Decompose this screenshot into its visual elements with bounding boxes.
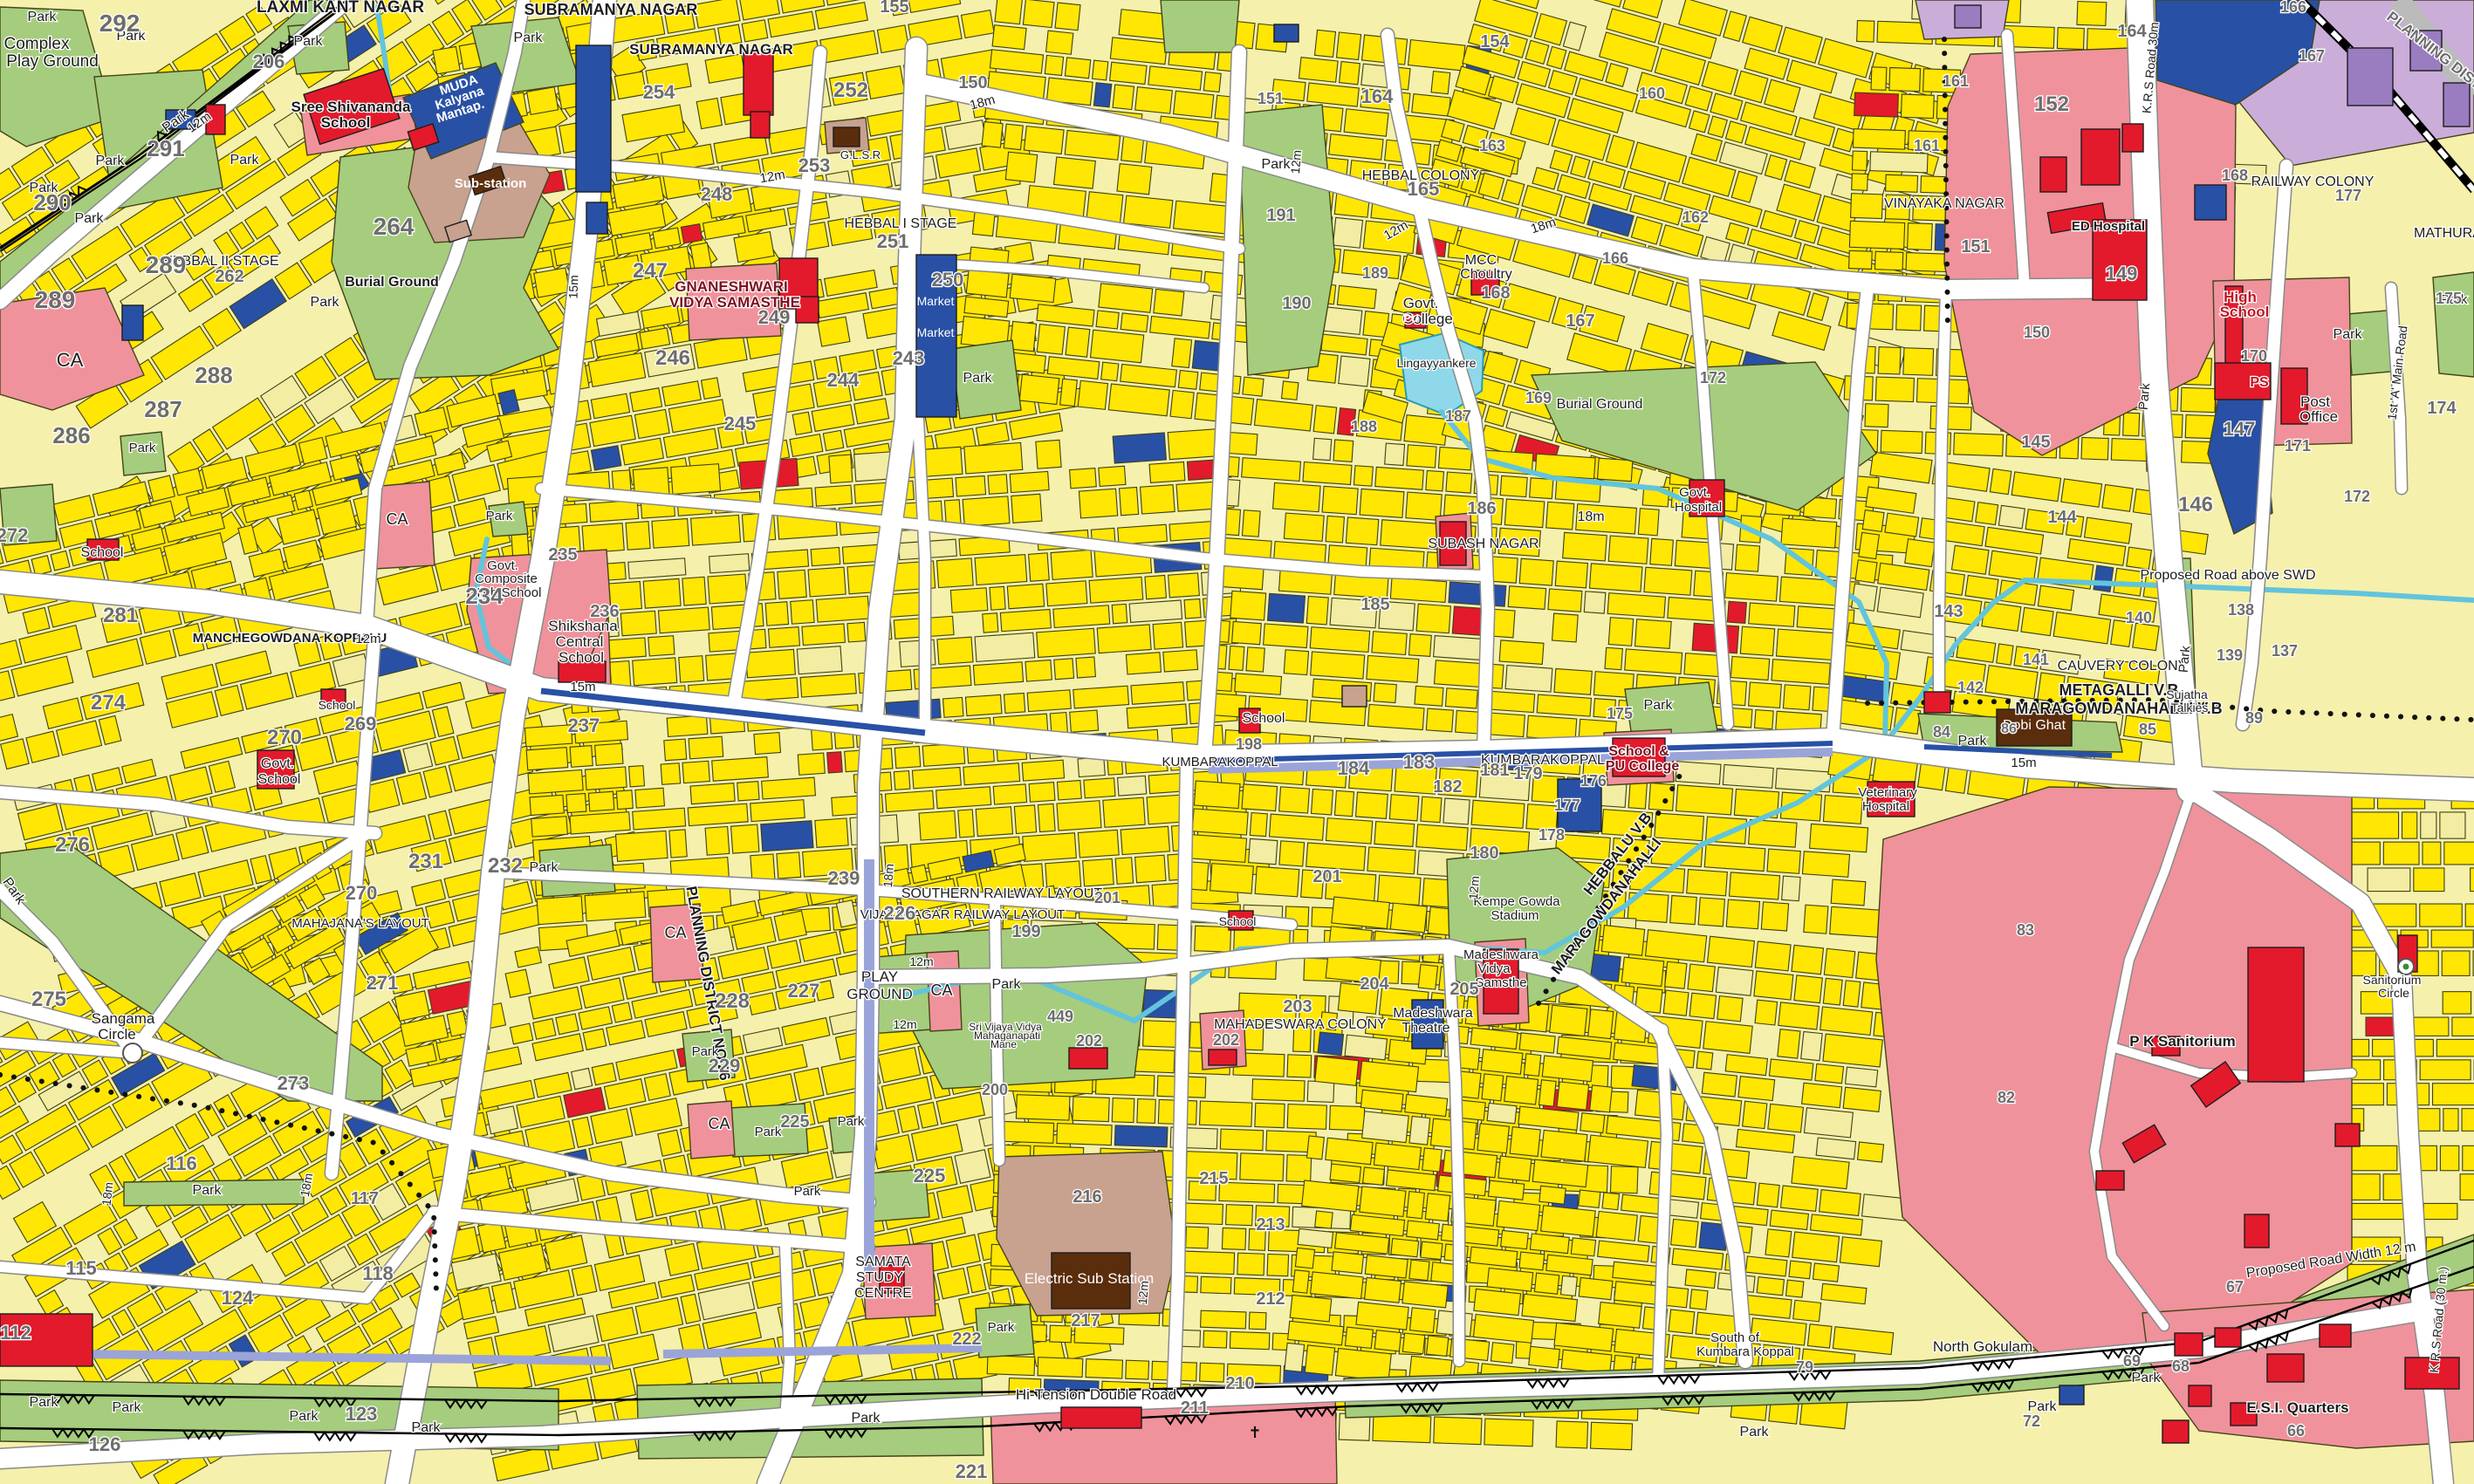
parcel <box>635 788 665 808</box>
parcel <box>433 46 460 73</box>
parcel <box>1896 304 1922 331</box>
parcel <box>1425 1193 1450 1221</box>
parcel <box>1831 879 1866 906</box>
parcel <box>1530 478 1553 499</box>
parcel <box>1046 31 1073 54</box>
parcel <box>531 817 568 837</box>
plot-number-label: 235 <box>548 545 577 564</box>
parcel <box>1776 629 1833 660</box>
parcel <box>1029 553 1050 581</box>
parcel <box>1501 1230 1529 1248</box>
parcel <box>1113 85 1134 110</box>
parcel <box>629 766 645 787</box>
parcel <box>537 896 583 925</box>
map-label: 18m <box>881 863 896 888</box>
parcel <box>1315 1211 1333 1228</box>
civic-building <box>750 112 770 138</box>
parcel <box>885 790 934 811</box>
map-label: P K Sanitorium <box>2129 1033 2236 1050</box>
plot-number-label: 139 <box>2217 646 2243 664</box>
parcel <box>982 121 1003 147</box>
parcel <box>1365 1277 1401 1303</box>
parcel <box>1090 330 1143 363</box>
parcel <box>1491 1343 1513 1364</box>
parcel <box>802 624 845 646</box>
parcel <box>616 790 633 810</box>
parcel <box>1310 627 1369 653</box>
park-zone <box>1161 0 1239 52</box>
parcel <box>626 522 650 551</box>
map-label: CA <box>708 1115 730 1132</box>
plot-number-label: 225 <box>780 1112 809 1132</box>
parcel <box>1333 440 1354 462</box>
parcel <box>1761 902 1788 931</box>
parcel <box>1190 835 1246 863</box>
parcel <box>1192 809 1248 835</box>
plot-number-label: 187 <box>1445 407 1471 425</box>
parcel <box>1607 593 1665 618</box>
parcel <box>1405 1095 1448 1117</box>
parcel <box>937 637 973 664</box>
map-label: Park <box>2334 327 2363 342</box>
plot-number-label: 164 <box>2117 22 2147 41</box>
parcel <box>808 567 846 597</box>
parcel <box>1628 782 1647 809</box>
parcel <box>586 767 627 790</box>
map-label: Hi-Tension Double Road <box>1016 1386 1176 1403</box>
parcel <box>2465 904 2474 927</box>
parcel <box>1871 67 1887 91</box>
parcel <box>1778 1029 1800 1058</box>
parcel <box>2440 812 2465 838</box>
parcel <box>1486 713 1525 737</box>
parcel <box>1404 415 1448 446</box>
parcel <box>2347 1145 2397 1170</box>
plot-number-label: 191 <box>1266 206 1295 225</box>
parcel <box>1865 404 1888 427</box>
plot-number-label: 154 <box>1480 32 1510 51</box>
parcel <box>1426 708 1453 732</box>
parcel <box>1749 603 1795 626</box>
parcel <box>1851 194 1883 219</box>
parcel <box>1066 327 1090 357</box>
parcel <box>430 736 459 765</box>
parcel <box>1023 833 1077 862</box>
parcel <box>1011 494 1042 523</box>
map-label: G.L.S.R <box>840 148 881 161</box>
parcel <box>2057 28 2084 50</box>
parcel <box>1286 1155 1312 1182</box>
parcel <box>1823 1034 1882 1067</box>
parcel <box>1816 1138 1855 1159</box>
parcel <box>2077 2 2107 26</box>
parcel <box>1078 380 1107 409</box>
parcel <box>988 475 1008 495</box>
parcel <box>1689 993 1716 1018</box>
parcel <box>1596 1211 1637 1241</box>
parcel <box>1306 1136 1324 1159</box>
parcel <box>1354 466 1373 487</box>
parcel <box>1434 1417 1482 1445</box>
map-label: Market <box>917 325 955 339</box>
parcel <box>1290 1295 1332 1321</box>
parcel <box>2420 1060 2471 1080</box>
civic-building <box>2081 129 2120 185</box>
map-label: School <box>81 545 124 560</box>
parcel <box>1120 313 1148 332</box>
map-label: Park <box>530 860 559 875</box>
road <box>785 1248 790 1418</box>
parcel <box>1716 967 1753 995</box>
parcel <box>1313 438 1332 460</box>
parcel <box>1421 797 1442 822</box>
parcel <box>1608 618 1633 646</box>
plot-number-label: 167 <box>2299 47 2325 65</box>
map-label: CAUVERY COLONY <box>2058 659 2188 674</box>
parcel <box>1093 83 1111 107</box>
commercial-building <box>576 45 611 192</box>
parcel <box>2433 1084 2474 1105</box>
parcel <box>534 268 570 297</box>
parcel <box>1004 693 1025 713</box>
parcel <box>1875 251 1903 270</box>
parcel <box>665 1243 699 1275</box>
map-label: Park <box>193 1183 223 1198</box>
parcel <box>1407 1192 1425 1219</box>
parcel <box>2443 992 2471 1014</box>
parcel <box>1778 1002 1820 1029</box>
parcel <box>1372 632 1407 655</box>
map-label: Park <box>30 1395 59 1410</box>
parcel <box>823 430 844 450</box>
parcel <box>1792 1232 1840 1262</box>
parcel <box>1889 68 1921 92</box>
parcel <box>1273 482 1321 511</box>
parcel <box>1278 1184 1305 1203</box>
civic-building <box>2189 1385 2211 1406</box>
parcel <box>612 1002 632 1022</box>
parcel <box>1529 1346 1560 1368</box>
city-map: LAXMI KANT NAGARSUBRAMANYA NAGARSUBRAMAN… <box>0 0 2474 1484</box>
parcel <box>526 748 568 770</box>
parcel <box>1852 174 1868 190</box>
parcel <box>2181 387 2216 412</box>
parcel <box>1990 468 2011 494</box>
civic-building <box>744 51 773 115</box>
parcel <box>1854 92 1899 117</box>
parcel <box>990 586 1005 610</box>
parcel <box>1249 1312 1266 1330</box>
parcel <box>1054 659 1074 680</box>
plot-number-label: 222 <box>952 1330 981 1349</box>
parcel <box>1755 1000 1778 1025</box>
parcel <box>644 1074 670 1101</box>
plot-number-label: 229 <box>709 1055 741 1077</box>
parcel <box>1471 800 1525 828</box>
parcel <box>1754 710 1773 729</box>
map-label: Park <box>1958 734 1988 749</box>
parcel <box>1830 906 1884 937</box>
parcel <box>633 658 677 686</box>
parcel <box>1385 443 1405 465</box>
parcel <box>1598 458 1633 482</box>
plot-number-label: 138 <box>2228 601 2254 619</box>
parcel <box>1168 573 1200 598</box>
parcel <box>1378 875 1421 905</box>
parcel <box>1725 573 1778 601</box>
parcel <box>1374 1143 1421 1170</box>
parcel <box>2038 585 2073 611</box>
parcel <box>1240 1153 1284 1181</box>
parcel <box>583 1029 607 1050</box>
parcel <box>1730 656 1769 680</box>
parcel <box>530 795 564 815</box>
plot-number-label: 269 <box>345 713 377 735</box>
map-label: Office <box>2299 408 2338 425</box>
parcel <box>1264 624 1308 648</box>
parcel <box>1270 814 1325 840</box>
parcel <box>1614 1282 1660 1305</box>
map-label: Burial Ground <box>1557 397 1643 412</box>
parcel <box>1504 1077 1539 1104</box>
parcel <box>2423 842 2441 865</box>
parcel <box>1093 60 1108 80</box>
parcel <box>1340 61 1360 84</box>
map-label: PLAY <box>861 968 898 985</box>
plot-number-label: 276 <box>55 833 90 857</box>
parcel <box>1229 646 1244 670</box>
parcel <box>1373 1415 1431 1443</box>
map-label: HEBBAL I STAGE <box>845 216 957 231</box>
parcel <box>1055 3 1080 31</box>
parcel <box>1298 1228 1333 1248</box>
map-label: Park <box>129 441 156 455</box>
map-label: Park <box>2176 645 2194 674</box>
parcel <box>1951 545 1989 574</box>
plot-number-label: 151 <box>1961 237 1990 256</box>
parcel <box>1497 1200 1540 1230</box>
parcel <box>963 763 1020 785</box>
parcel <box>1723 765 1773 789</box>
parcel <box>1591 1422 1633 1449</box>
parcel <box>1852 151 1867 170</box>
parcel <box>1445 688 1477 708</box>
parcel <box>1556 1421 1588 1448</box>
parcel <box>1875 377 1914 402</box>
parcel <box>1065 58 1090 79</box>
parcel <box>1541 1130 1587 1161</box>
parcel <box>1768 1104 1804 1132</box>
parcel <box>737 782 759 801</box>
plot-number-label: 117 <box>351 1189 379 1208</box>
plot-number-label: 211 <box>1181 1399 1209 1418</box>
map-label: Stadium <box>1491 908 1539 923</box>
parcel <box>1550 1005 1587 1036</box>
parcel <box>1243 377 1264 396</box>
parcel <box>1687 869 1728 895</box>
parcel <box>1443 798 1470 824</box>
parcel <box>1702 1072 1737 1097</box>
parcel <box>1000 610 1051 632</box>
parcel <box>993 784 1026 804</box>
plot-number-label: 84 <box>1933 723 1950 741</box>
plot-number-label: 145 <box>2021 433 2050 452</box>
parcel <box>1804 1108 1853 1138</box>
parcel <box>1118 524 1168 544</box>
parcel <box>658 607 709 633</box>
civic-building <box>2040 157 2066 192</box>
parcel <box>1230 1331 1269 1349</box>
parcel <box>1407 1221 1440 1240</box>
plot-number-label: 281 <box>103 604 138 627</box>
parcel <box>1084 778 1115 798</box>
map-label: GNANESHWARI <box>675 278 787 295</box>
parcel <box>585 892 646 921</box>
map-label: Park <box>992 977 1022 992</box>
map-label: 18m <box>1577 509 1604 524</box>
parcel <box>708 574 747 604</box>
plot-number-label: 169 <box>1525 389 1552 407</box>
parcel <box>1813 1263 1840 1282</box>
plot-number-label: 168 <box>2222 167 2248 184</box>
parcel <box>1446 472 1472 493</box>
parcel <box>1336 32 1360 60</box>
parcel <box>1237 1253 1264 1275</box>
parcel <box>1120 488 1139 516</box>
parcel <box>1504 499 1544 528</box>
parcel <box>1789 1261 1811 1279</box>
parcel <box>1555 561 1587 588</box>
parcel <box>1589 564 1641 592</box>
plot-number-label: 246 <box>655 346 690 370</box>
parcel <box>1843 981 1861 1007</box>
parcel <box>1163 650 1198 672</box>
map-label: E.S.I. Quarters <box>2246 1399 2348 1416</box>
map-label: SUBASH NAGAR <box>1428 537 1539 551</box>
park-zone <box>2433 272 2474 377</box>
parcel <box>527 87 559 115</box>
parcel <box>1022 760 1064 781</box>
parcel <box>669 830 687 858</box>
plot-number-label: 68 <box>2172 1357 2190 1375</box>
parcel <box>709 554 750 573</box>
parcel <box>1242 458 1301 482</box>
parcel <box>648 636 675 656</box>
parcel <box>1153 622 1182 649</box>
parcel <box>1326 516 1344 543</box>
plot-number-label: 178 <box>1539 826 1565 844</box>
parcel <box>1108 384 1169 416</box>
parcel <box>1560 1275 1577 1296</box>
plot-number-label: 237 <box>568 715 600 736</box>
parcel <box>661 763 681 785</box>
plot-number-label: 183 <box>1403 751 1436 773</box>
parcel <box>2081 437 2108 460</box>
plot-number-label: 177 <box>2335 187 2361 204</box>
parcel <box>1783 685 1810 710</box>
parcel <box>987 1356 1035 1376</box>
parcel <box>1881 430 1922 453</box>
parcel <box>912 767 961 788</box>
parcel <box>533 1019 556 1040</box>
cemetery-cross-icon: ✝ <box>1248 1424 1261 1441</box>
plot-number-label: 175 <box>2436 290 2462 307</box>
parcel <box>1004 124 1023 149</box>
parcel <box>1849 221 1904 249</box>
parcel <box>866 66 905 99</box>
parcel <box>1499 640 1544 665</box>
parcel <box>1154 289 1184 316</box>
parcel <box>750 800 805 822</box>
plot-number-label: 166 <box>2280 0 2306 16</box>
parcel <box>811 547 840 565</box>
parcel <box>877 25 908 53</box>
parcel <box>690 243 711 270</box>
parcel <box>1601 926 1644 956</box>
parcel <box>1306 596 1328 624</box>
parcel <box>1010 471 1049 492</box>
parcel <box>1857 21 1874 43</box>
plot-number-label: 206 <box>253 51 285 72</box>
plot-number-label: 236 <box>590 602 619 621</box>
map-label: Park <box>514 31 544 45</box>
map-label: MAHADESWARA COLONY <box>1214 1017 1387 1032</box>
parcel <box>1541 1206 1596 1237</box>
map-label: School <box>258 772 301 787</box>
parcel <box>1530 1234 1569 1254</box>
plot-number-label: 124 <box>222 1287 254 1309</box>
parcel <box>634 409 669 438</box>
parcel <box>1103 797 1145 827</box>
parcel <box>1024 127 1064 154</box>
parcel <box>1427 1336 1449 1357</box>
parcel <box>1220 1129 1263 1151</box>
parcel <box>572 1068 593 1089</box>
map-label: Kempe Gowda <box>1473 894 1560 909</box>
parcel <box>1846 1067 1878 1087</box>
parcel <box>1242 784 1278 811</box>
parcel <box>1510 1127 1540 1157</box>
parcel <box>1076 657 1095 678</box>
civic-building <box>1061 1407 1141 1428</box>
parcel <box>1757 1183 1779 1207</box>
parcel <box>1362 1111 1409 1143</box>
parcel <box>1843 1087 1881 1111</box>
plot-number-label: 270 <box>267 726 302 749</box>
plot-number-label: 170 <box>2241 347 2267 365</box>
parcel <box>1200 1363 1224 1382</box>
parcel <box>1345 1327 1373 1348</box>
parcel <box>992 25 1026 50</box>
parcel <box>1192 340 1221 371</box>
plot-number-label: 272 <box>0 524 28 546</box>
parcel <box>1815 1063 1844 1083</box>
parcel <box>2102 484 2133 511</box>
parcel <box>1201 1276 1231 1294</box>
drain-strip <box>663 1348 982 1354</box>
parcel <box>1505 666 1552 693</box>
parcel <box>1115 858 1133 884</box>
parcel <box>1096 311 1119 329</box>
parcel <box>1998 505 2025 528</box>
civic-building <box>2248 947 2304 1082</box>
parcel <box>1870 152 1928 173</box>
plot-number-label: 199 <box>1011 922 1040 941</box>
map-label: Sangama <box>92 1010 155 1027</box>
parcel <box>975 555 1027 585</box>
parcel <box>1141 485 1175 514</box>
parcel <box>762 777 816 799</box>
